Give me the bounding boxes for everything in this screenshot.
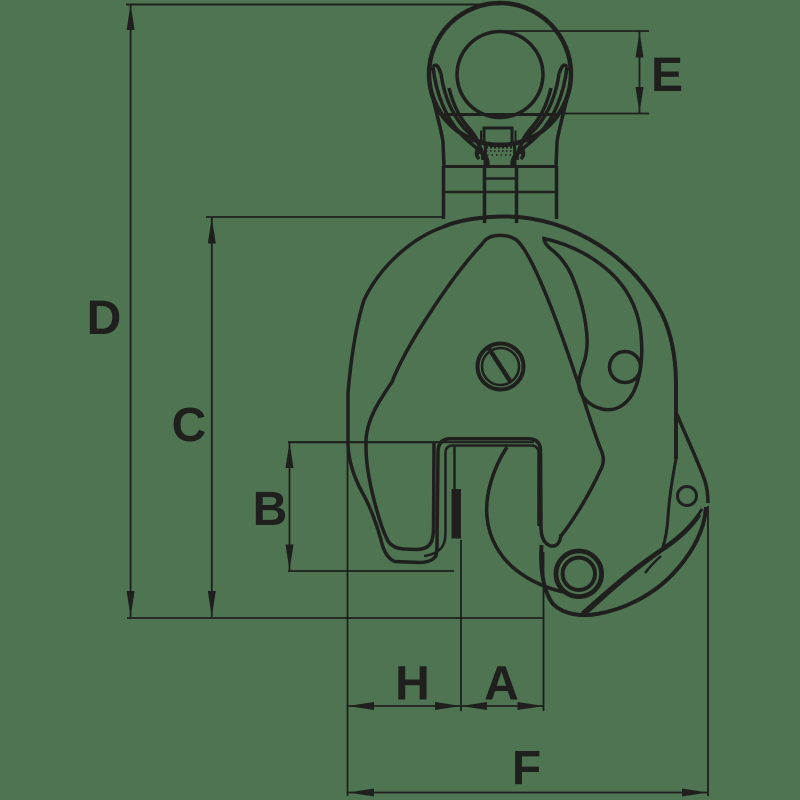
svg-text:F: F (512, 742, 541, 795)
svg-text:A: A (484, 658, 519, 711)
svg-text:D: D (87, 292, 122, 345)
svg-text:B: B (253, 483, 288, 536)
svg-text:E: E (651, 49, 683, 102)
svg-text:C: C (172, 399, 207, 452)
svg-text:H: H (395, 658, 430, 711)
